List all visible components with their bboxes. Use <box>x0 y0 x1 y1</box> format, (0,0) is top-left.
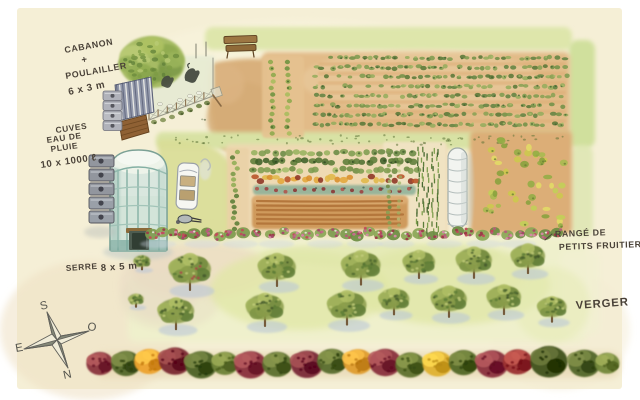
svg-text:O: O <box>87 321 98 334</box>
svg-text:RANGÉ DE: RANGÉ DE <box>555 227 607 239</box>
